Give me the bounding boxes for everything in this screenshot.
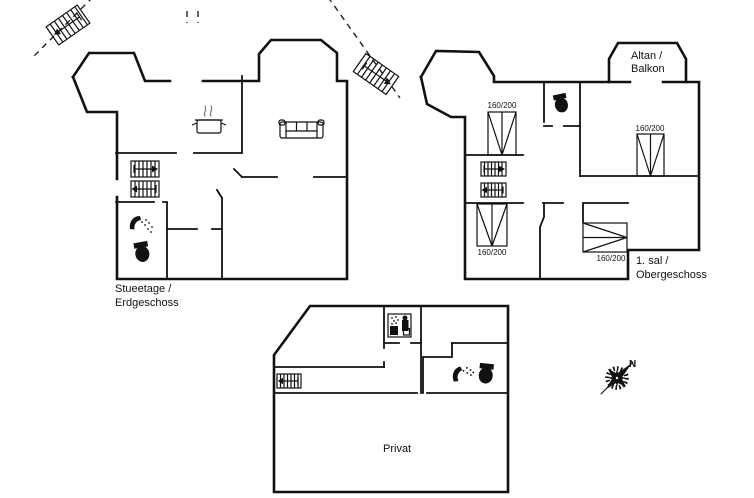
- upper-floor-outer-walls: [421, 43, 699, 279]
- bed-size-label: 160/200: [488, 101, 517, 110]
- ground-floor-label-line2: Erdgeschoss: [115, 297, 179, 309]
- sofa-icon: [279, 120, 324, 138]
- staircase-down-icon: [277, 374, 301, 388]
- toilet-icon: [553, 93, 570, 114]
- ground-floor-outer-walls: [73, 40, 347, 279]
- double-bed-icon: [488, 112, 516, 155]
- toilet-icon: [478, 363, 494, 384]
- staircase-up-icon: [481, 162, 506, 176]
- compass-rose: N: [592, 353, 643, 404]
- balcony-label-line1: Altan /: [631, 50, 663, 62]
- exterior-stairs-icon: [46, 5, 90, 45]
- upper-floor-label-line1: 1. sal /: [636, 255, 669, 267]
- exterior-stairs-icon: [353, 54, 398, 95]
- shower-icon: [450, 363, 475, 382]
- ground-floor-label-line1: Stueetage /: [115, 283, 172, 295]
- double-bed-icon: [637, 134, 664, 176]
- double-bed-icon: [583, 223, 627, 252]
- floor-plan-page: Stueetage / Erdgeschoss: [0, 0, 754, 498]
- bed-size-label: 160/200: [597, 254, 626, 263]
- stove-pot-icon: [192, 106, 226, 133]
- staircase-down-icon: [131, 181, 159, 197]
- upper-floor-label-line2: Obergeschoss: [636, 269, 707, 281]
- basement-plan: Privat: [274, 306, 508, 492]
- floor-plan-drawing: Stueetage / Erdgeschoss: [0, 0, 754, 498]
- staircase-up-icon: [131, 161, 159, 177]
- north-label: N: [629, 359, 636, 370]
- basement-interior-walls: [274, 306, 508, 393]
- ground-floor-plan: Stueetage / Erdgeschoss: [33, 0, 400, 309]
- upper-floor-plan: 160/200 160/200 160/200 160/200 Altan / …: [421, 43, 707, 281]
- terrace-dashed-outline: [33, 0, 400, 98]
- balcony-label-line2: Balkon: [631, 63, 665, 75]
- staircase-down-icon: [481, 183, 506, 197]
- bed-size-label: 160/200: [636, 124, 665, 133]
- sauna-icon: [388, 314, 411, 337]
- double-bed-icon: [477, 204, 507, 246]
- basement-label: Privat: [383, 443, 411, 455]
- shower-icon: [130, 216, 153, 233]
- toilet-icon: [133, 241, 150, 263]
- bed-size-label: 160/200: [478, 248, 507, 257]
